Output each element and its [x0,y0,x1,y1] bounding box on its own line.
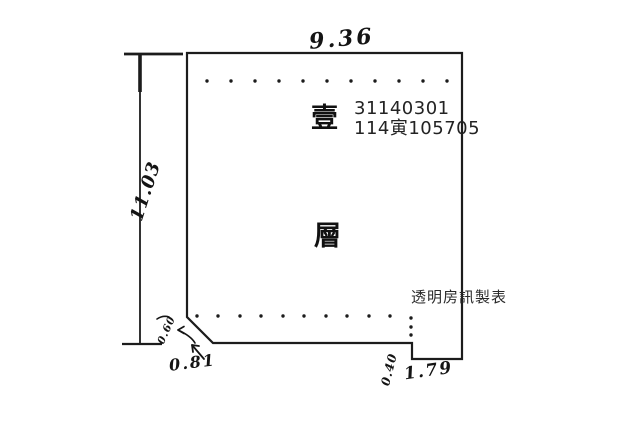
floor-plan-canvas: 9.36 11.03 0.60 0.81 0.40 1.79 壹 層 31140… [0,0,640,421]
floor-plan-drawing [0,0,640,421]
case-number: 114寅105705 [354,120,480,138]
dot-row-top [205,79,448,82]
watermark-label: 透明房訊製表 [411,290,507,305]
floor-label-top: 壹 [311,105,338,132]
dimension-top-width: 9.36 [308,25,375,53]
floor-label-bottom: 層 [314,223,341,250]
dot-column-right [409,316,412,336]
registration-number: 31140301 [354,100,450,118]
dot-row-bottom [195,314,391,317]
